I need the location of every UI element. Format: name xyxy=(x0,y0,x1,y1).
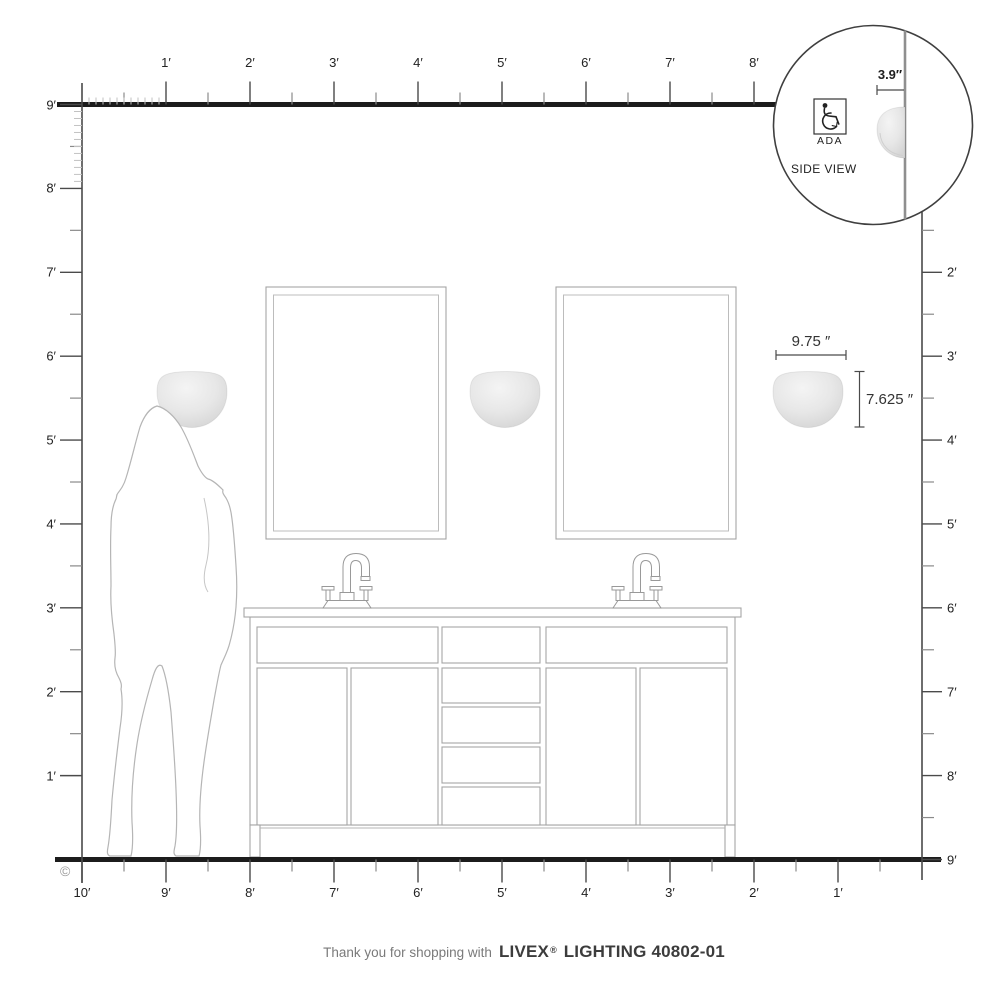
ruler-label: 3′ xyxy=(18,600,56,615)
registered-mark: ® xyxy=(550,945,557,955)
ruler-label: 6′ xyxy=(947,600,957,615)
countertop xyxy=(244,608,741,617)
ruler-label: 8′ xyxy=(947,768,957,783)
sconce-right xyxy=(773,372,843,428)
diagram-canvas: 1′2′3′4′5′6′7′8′ 9′8′7′6′5′4′3′2′1′ 2′3′… xyxy=(0,0,1000,986)
footer-text: Thank you for shopping with LIVEX ® LIGH… xyxy=(24,942,1000,962)
copyright-symbol: © xyxy=(60,863,70,879)
ruler-label: 2′ xyxy=(947,265,957,280)
ruler-label: 5′ xyxy=(497,55,507,70)
sconce-center xyxy=(470,372,540,428)
ruler-label: 2′ xyxy=(749,885,759,900)
ruler-label: 7′ xyxy=(947,684,957,699)
ruler-label: 4′ xyxy=(947,433,957,448)
height-dimension-line xyxy=(855,372,865,428)
ruler-label: 1′ xyxy=(18,768,56,783)
scene-svg xyxy=(0,0,1000,986)
footer-model: LIGHTING 40802-01 xyxy=(564,942,725,962)
ruler-label: 2′ xyxy=(18,684,56,699)
ruler-label: 6′ xyxy=(413,885,423,900)
ruler-label: 1′ xyxy=(161,55,171,70)
ruler-label: 5′ xyxy=(497,885,507,900)
ada-icon xyxy=(814,99,846,134)
ruler-label: 6′ xyxy=(581,55,591,70)
side-view-inset xyxy=(774,26,973,225)
faucet-right xyxy=(612,554,662,609)
ruler-label: 6′ xyxy=(18,349,56,364)
ruler-label: 5′ xyxy=(947,516,957,531)
woman-silhouette xyxy=(107,406,236,856)
ruler-label: 5′ xyxy=(18,433,56,448)
ruler-label: 9′ xyxy=(161,885,171,900)
ruler-label: 9′ xyxy=(18,97,56,112)
width-dimension-line xyxy=(776,350,846,360)
vanity-cabinet xyxy=(244,608,741,857)
ruler-label: 8′ xyxy=(749,55,759,70)
ruler-label: 3′ xyxy=(329,55,339,70)
side-view-label: SIDE VIEW xyxy=(791,162,857,176)
footer-prefix: Thank you for shopping with xyxy=(323,945,492,960)
ruler-label: 4′ xyxy=(581,885,591,900)
ruler-label: 7′ xyxy=(329,885,339,900)
ruler-label: 3′ xyxy=(665,885,675,900)
ruler-label: 7′ xyxy=(665,55,675,70)
faucet-left xyxy=(322,554,372,609)
sconce-depth-label: 3.9″ xyxy=(867,67,913,82)
ruler-label: 3′ xyxy=(947,349,957,364)
mirror-left xyxy=(266,287,446,539)
ruler-label: 4′ xyxy=(18,516,56,531)
sconce-width-label: 9.75 ″ xyxy=(776,333,846,350)
ruler-label: 7′ xyxy=(18,265,56,280)
ruler-label: 1′ xyxy=(833,885,843,900)
sconce-height-label: 7.625 ″ xyxy=(866,391,913,408)
ada-label: ADA xyxy=(812,135,848,147)
inset-circle xyxy=(774,26,973,225)
ruler-label: 8′ xyxy=(245,885,255,900)
ruler-label: 10′ xyxy=(74,885,91,900)
ruler-label: 4′ xyxy=(413,55,423,70)
ruler-label: 8′ xyxy=(18,181,56,196)
mirror-right xyxy=(556,287,736,539)
footer-brand: LIVEX xyxy=(499,942,549,962)
ruler-label: 2′ xyxy=(245,55,255,70)
ruler-label: 9′ xyxy=(947,852,957,867)
